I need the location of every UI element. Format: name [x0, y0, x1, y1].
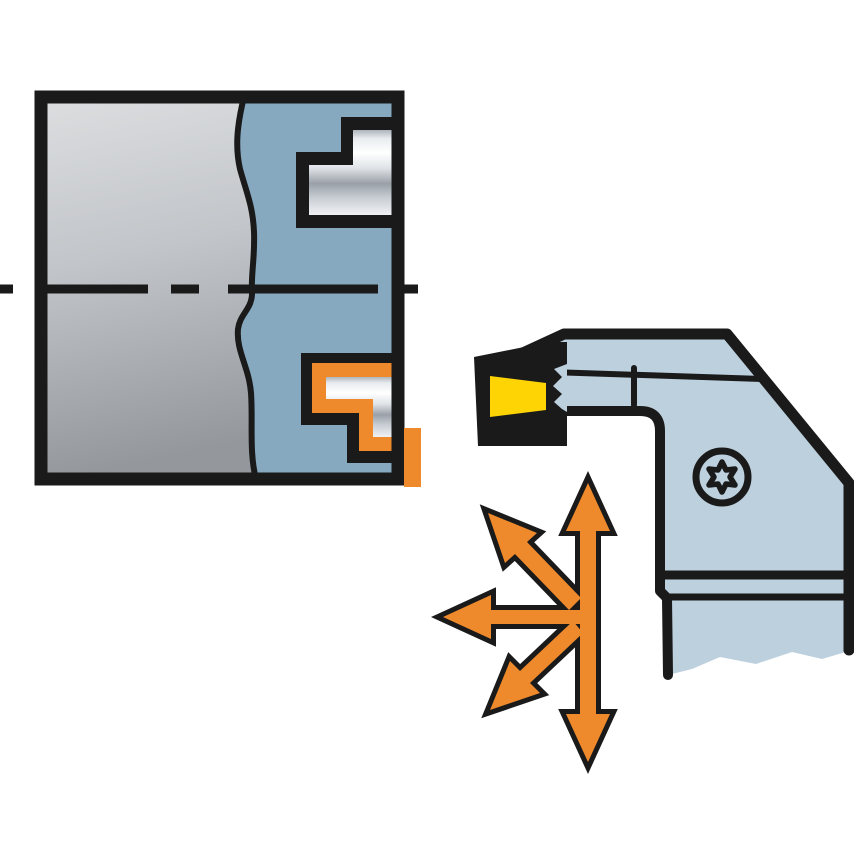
workpiece	[0, 97, 421, 487]
illustration-canvas	[0, 0, 854, 854]
orange-profile-tab	[404, 428, 421, 487]
feed-arrows	[443, 483, 610, 762]
technical-diagram	[0, 0, 854, 854]
cutting-insert	[490, 376, 546, 417]
